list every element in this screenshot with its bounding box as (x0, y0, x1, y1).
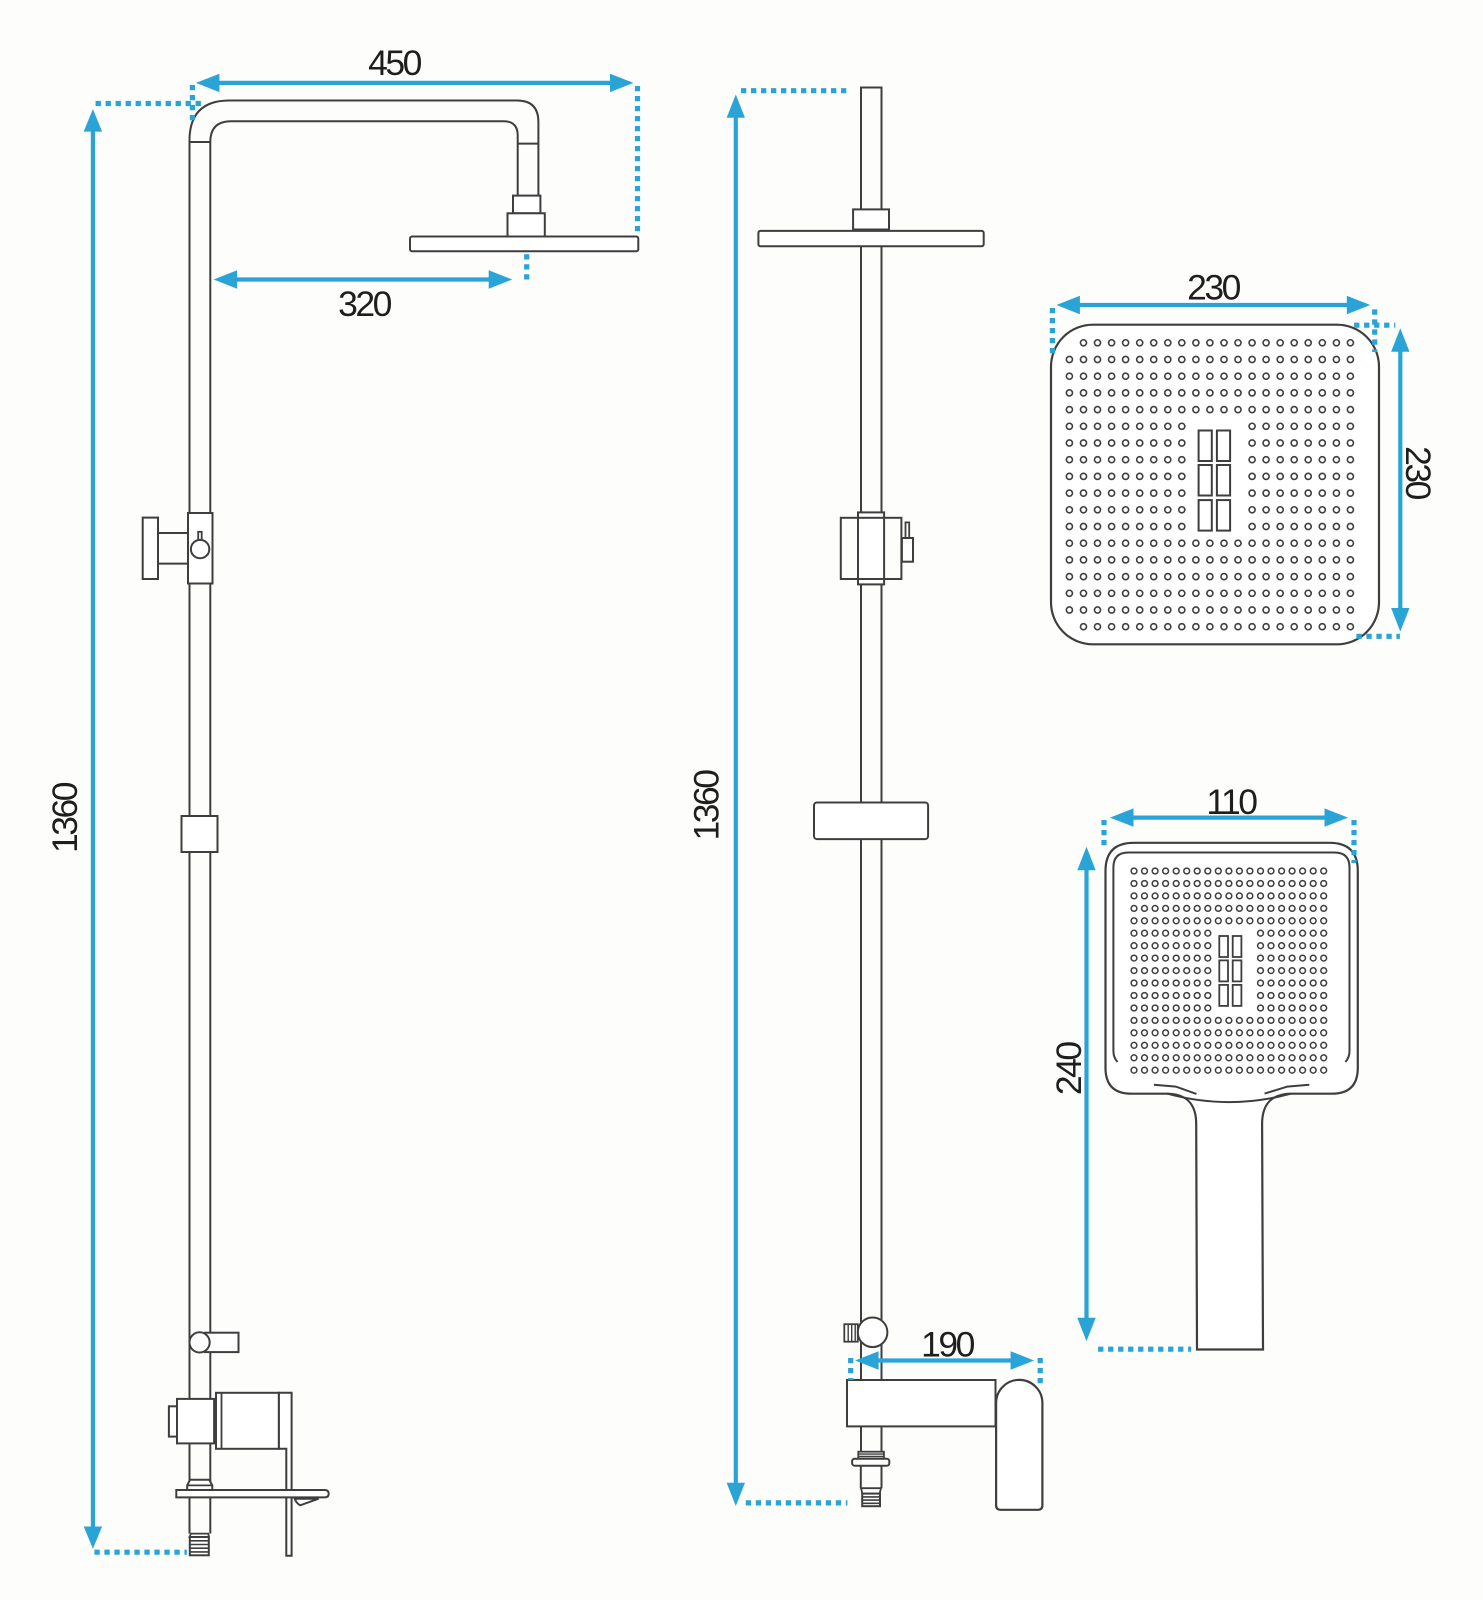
svg-text:230: 230 (1187, 267, 1240, 307)
svg-text:190: 190 (921, 1324, 974, 1364)
svg-text:1360: 1360 (687, 770, 727, 841)
svg-text:110: 110 (1206, 782, 1257, 822)
svg-text:320: 320 (338, 284, 391, 324)
svg-text:450: 450 (368, 43, 421, 83)
svg-text:230: 230 (1398, 446, 1438, 499)
svg-text:240: 240 (1049, 1042, 1089, 1095)
svg-text:1360: 1360 (45, 782, 85, 853)
